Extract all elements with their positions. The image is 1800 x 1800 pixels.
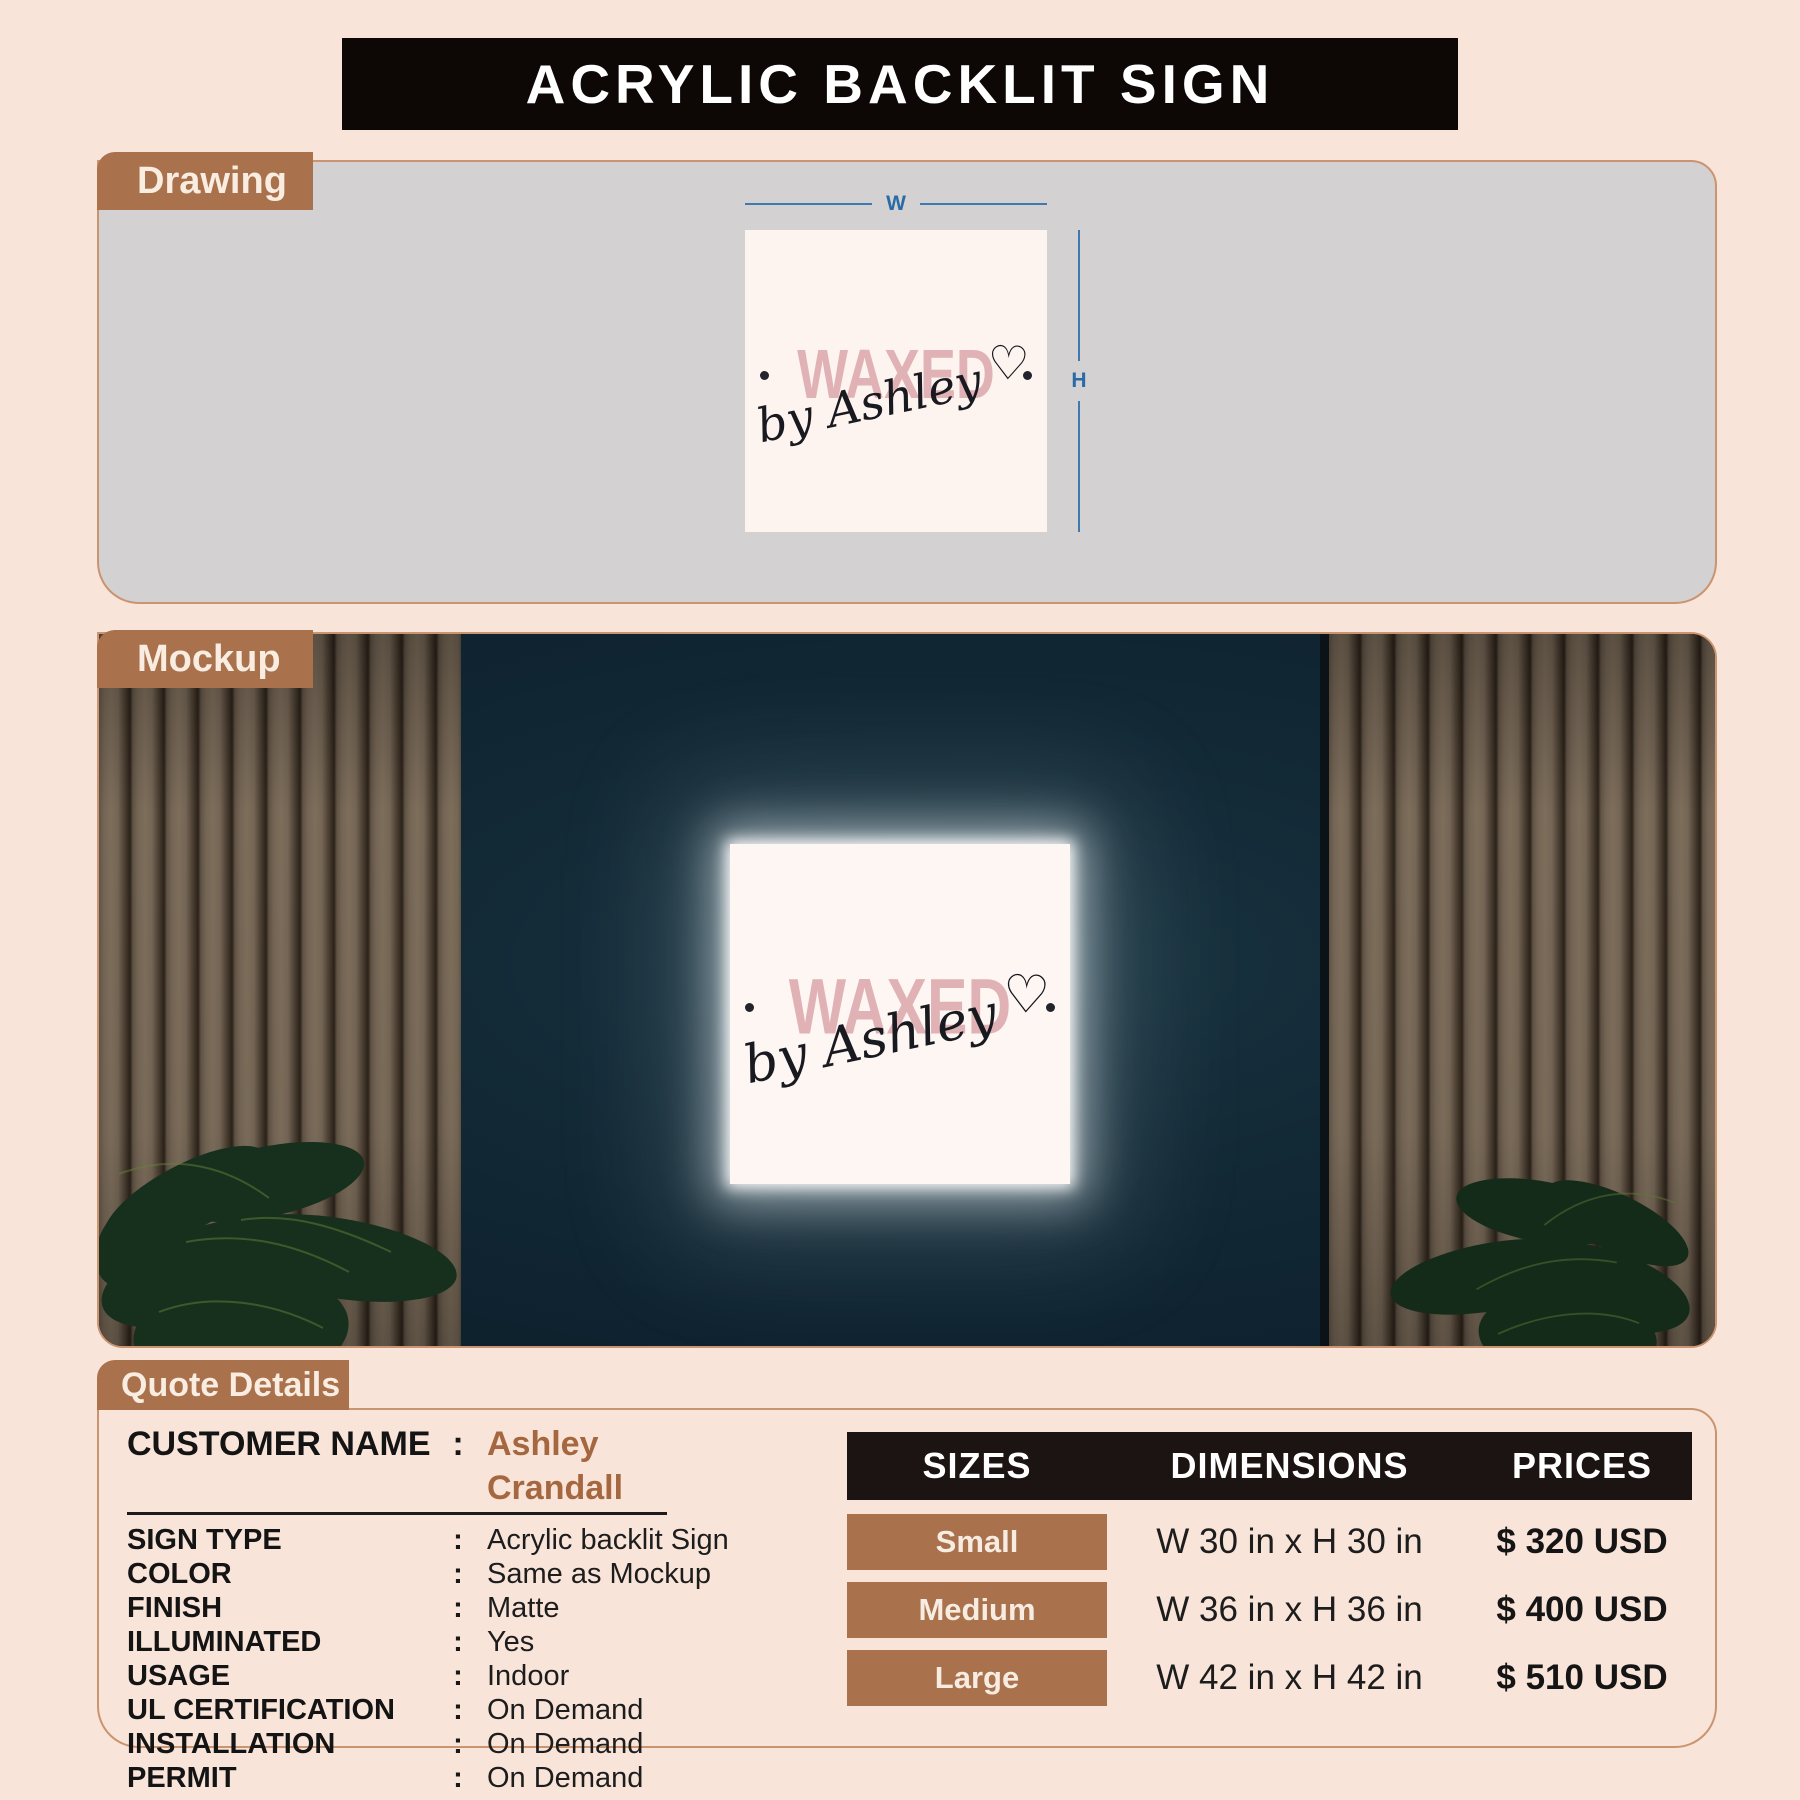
height-dim-segment-bottom <box>1078 401 1080 532</box>
mockup-section-tab: Mockup <box>97 630 313 688</box>
height-dim-label: H <box>1071 369 1086 393</box>
price-value: $ 320 USD <box>1472 1522 1692 1562</box>
detail-label: UL CERTIFICATION <box>127 1693 445 1727</box>
heart-icon: ♡ <box>1002 964 1051 1027</box>
price-value: $ 510 USD <box>1472 1658 1692 1698</box>
width-dim-segment-right <box>920 203 1047 205</box>
heart-icon: ♡ <box>986 337 1030 392</box>
sign-drawing: WAXED by Ashley♡ <box>745 230 1047 532</box>
dimensions-value: W 36 in x H 36 in <box>1107 1590 1472 1630</box>
quote-details-section-tab: Quote Details <box>97 1360 349 1410</box>
detail-value: On Demand <box>471 1727 737 1761</box>
header-sizes: SIZES <box>847 1445 1107 1487</box>
pricing-table-header: SIZES DIMENSIONS PRICES <box>847 1432 1692 1500</box>
mockup-panel: WAXED by Ashley♡ <box>97 632 1717 1348</box>
drawing-tab-label: Drawing <box>137 160 287 203</box>
detail-value: Acrylic backlit Sign <box>471 1523 737 1557</box>
detail-label: ILLUMINATED <box>127 1625 445 1659</box>
quote-tab-label: Quote Details <box>121 1366 340 1405</box>
detail-label: COLOR <box>127 1557 445 1591</box>
colon-separator: : <box>445 1727 471 1761</box>
header-prices: PRICES <box>1472 1445 1692 1487</box>
dimensions-value: W 30 in x H 30 in <box>1107 1522 1472 1562</box>
colon-separator: : <box>445 1591 471 1625</box>
height-dim-segment-top <box>1078 230 1080 361</box>
detail-value: Same as Mockup <box>471 1557 737 1591</box>
customer-underline <box>127 1512 667 1515</box>
width-dim-segment-left <box>745 203 872 205</box>
drawing-section-tab: Drawing <box>97 152 313 210</box>
colon-separator: : <box>445 1557 471 1591</box>
width-dim-label: W <box>886 192 906 216</box>
detail-label: USAGE <box>127 1659 445 1693</box>
detail-value: On Demand <box>471 1761 737 1795</box>
customer-name-label: CUSTOMER NAME <box>127 1422 445 1466</box>
colon-separator: : <box>445 1523 471 1557</box>
width-dimension-line: W <box>745 192 1047 216</box>
page-header: ACRYLIC BACKLIT SIGN <box>342 38 1458 130</box>
mount-dot-icon <box>760 371 769 380</box>
customer-name-value: Ashley Crandall <box>471 1422 737 1510</box>
height-dimension-line: H <box>1066 230 1092 532</box>
size-button-large[interactable]: Large <box>847 1650 1107 1706</box>
quote-details-panel: CUSTOMER NAME : Ashley Crandall SIGN TYP… <box>97 1408 1717 1748</box>
detail-value: Matte <box>471 1591 737 1625</box>
page-title: ACRYLIC BACKLIT SIGN <box>526 52 1275 116</box>
detail-label: PERMIT <box>127 1761 445 1795</box>
colon-separator: : <box>445 1659 471 1693</box>
detail-value: Indoor <box>471 1659 737 1693</box>
dimensions-value: W 42 in x H 42 in <box>1107 1658 1472 1698</box>
table-row-small: Small W 30 in x H 30 in $ 320 USD <box>847 1514 1692 1570</box>
colon-separator: : <box>445 1625 471 1659</box>
size-button-small[interactable]: Small <box>847 1514 1107 1570</box>
table-row-medium: Medium W 36 in x H 36 in $ 400 USD <box>847 1582 1692 1638</box>
quote-details-list: CUSTOMER NAME : Ashley Crandall SIGN TYP… <box>127 1422 737 1795</box>
table-row-large: Large W 42 in x H 42 in $ 510 USD <box>847 1650 1692 1706</box>
detail-value: On Demand <box>471 1693 737 1727</box>
header-dimensions: DIMENSIONS <box>1107 1445 1472 1487</box>
drawing-panel: W H WAXED by Ashley♡ <box>97 160 1717 604</box>
colon-separator: : <box>445 1761 471 1795</box>
price-value: $ 400 USD <box>1472 1590 1692 1630</box>
detail-value: Yes <box>471 1625 737 1659</box>
plant-left <box>97 1070 491 1348</box>
detail-label: INSTALLATION <box>127 1727 445 1761</box>
sign-mockup-backlit: WAXED by Ashley♡ <box>730 844 1070 1184</box>
detail-label: SIGN TYPE <box>127 1523 445 1557</box>
mockup-tab-label: Mockup <box>137 638 281 681</box>
detail-label: FINISH <box>127 1591 445 1625</box>
colon-separator: : <box>445 1693 471 1727</box>
size-button-medium[interactable]: Medium <box>847 1582 1107 1638</box>
pricing-table: SIZES DIMENSIONS PRICES Small W 30 in x … <box>847 1432 1692 1706</box>
mount-dot-icon <box>745 1003 754 1012</box>
colon-separator: : <box>445 1422 471 1466</box>
plant-right <box>1323 1100 1717 1348</box>
